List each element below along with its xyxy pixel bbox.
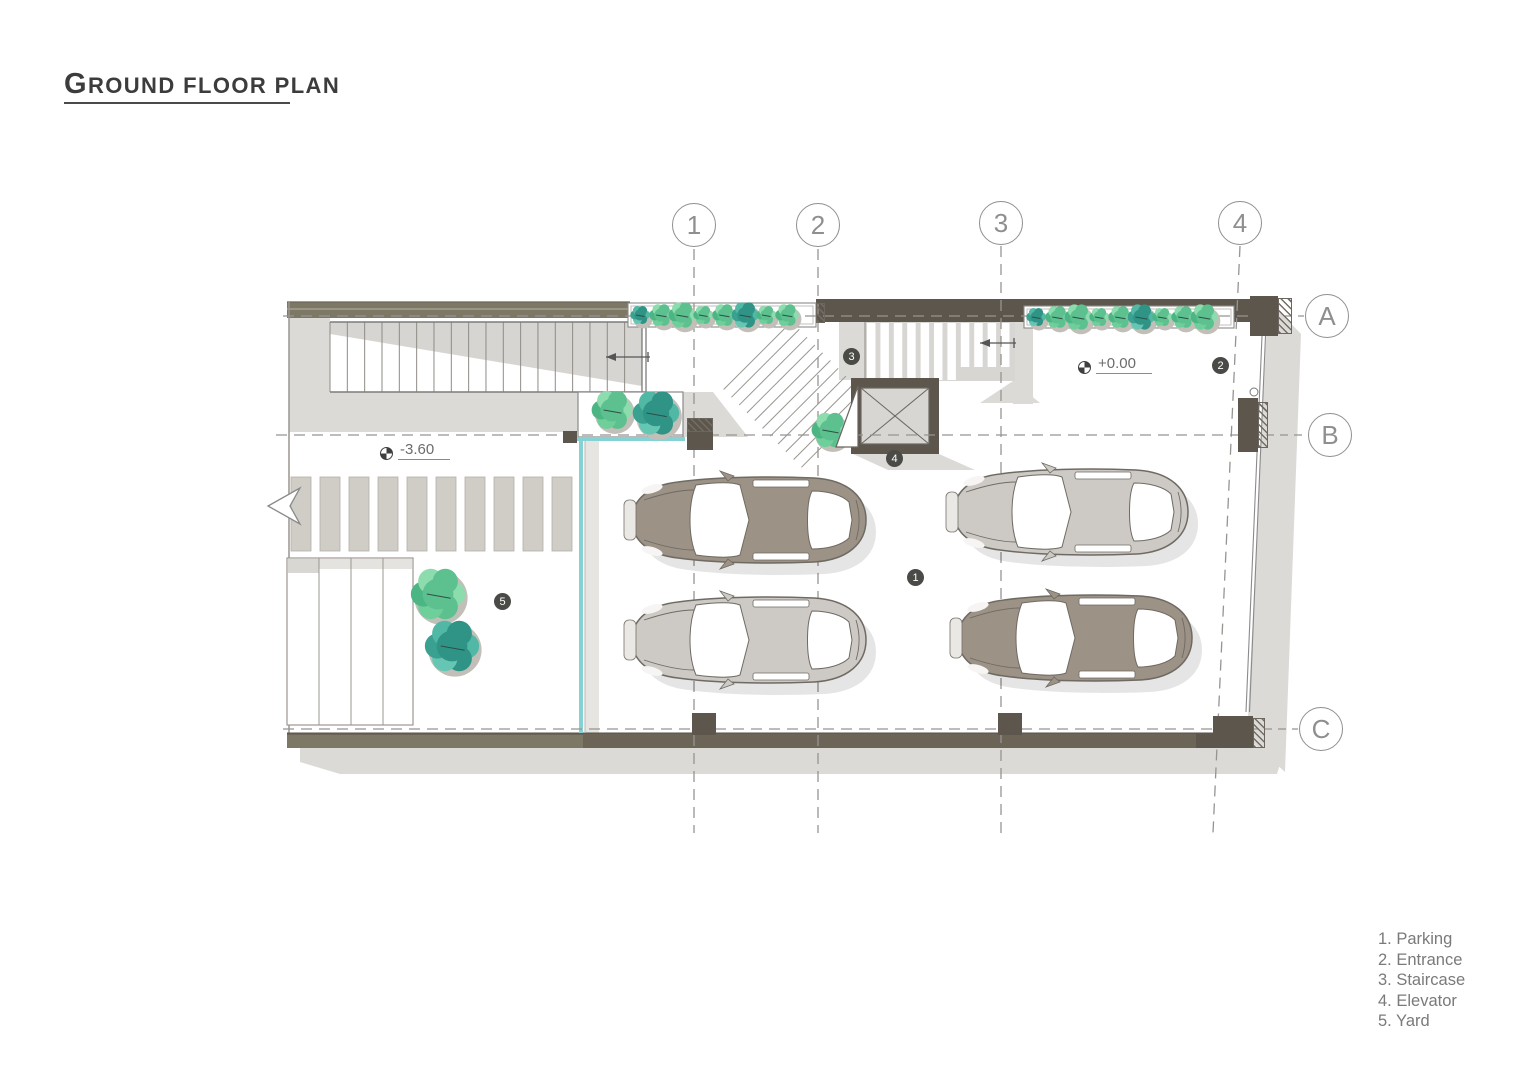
grid-bubble-C: C <box>1299 707 1343 751</box>
grid-bubble-1: 1 <box>672 203 716 247</box>
car-dark-1 <box>624 471 876 575</box>
level-value: +0.00 <box>1096 355 1152 374</box>
benchmark-icon <box>380 447 393 460</box>
column-hatch <box>1258 402 1268 448</box>
badge-parking: 1 <box>907 569 924 586</box>
badge-yard: 5 <box>494 593 511 610</box>
level-value: -3.60 <box>398 441 450 460</box>
grid-bubble-2: 2 <box>796 203 840 247</box>
level-marker-parking: -3.60 <box>380 441 450 460</box>
car-light-2 <box>946 463 1198 567</box>
grid-bubble-A: A <box>1305 294 1349 338</box>
car-light-1 <box>624 591 876 695</box>
grid-bubble-3: 3 <box>979 201 1023 245</box>
page-title: GROUND FLOOR PLAN <box>64 68 340 101</box>
title-underline <box>64 102 290 104</box>
column-hatch <box>1253 718 1265 748</box>
legend-item-entrance: 2. Entrance <box>1378 950 1465 971</box>
plan-drawing <box>0 0 1536 1086</box>
grid-bubble-B: B <box>1308 413 1352 457</box>
benchmark-icon <box>1078 361 1091 374</box>
grid-bubble-4: 4 <box>1218 201 1262 245</box>
badge-elevator: 4 <box>886 450 903 467</box>
legend-item-elevator: 4. Elevator <box>1378 991 1465 1012</box>
badge-staircase: 3 <box>843 348 860 365</box>
legend-item-staircase: 3. Staircase <box>1378 970 1465 991</box>
legend-item-parking: 1. Parking <box>1378 929 1465 950</box>
car-dark-2 <box>950 589 1202 693</box>
legend-item-yard: 5. Yard <box>1378 1011 1465 1032</box>
level-marker-entrance: +0.00 <box>1078 355 1152 374</box>
floor-plan-sheet: GROUND FLOOR PLAN 1 2 3 4 A B C 1 2 3 4 … <box>0 0 1536 1086</box>
badge-entrance: 2 <box>1212 357 1229 374</box>
legend: 1. Parking 2. Entrance 3. Staircase 4. E… <box>1378 929 1465 1032</box>
door-jamb-hatch <box>816 303 825 323</box>
column-hatch <box>1278 298 1292 334</box>
column-hatch <box>687 418 713 432</box>
